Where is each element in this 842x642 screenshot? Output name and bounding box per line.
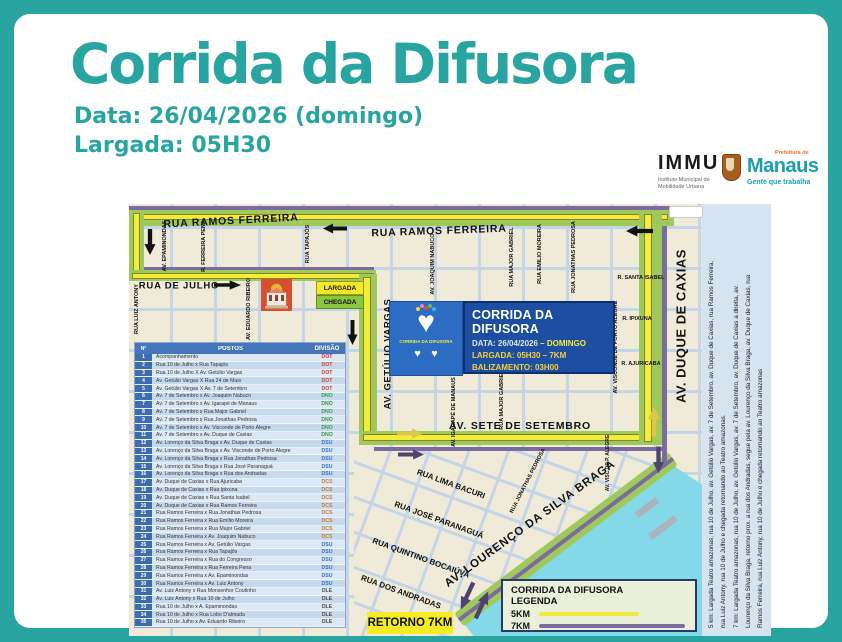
table-row: 27Rua Ramos Ferreira x Rua do CongressoD… [135,557,345,565]
arrow-down-icon [144,229,156,255]
immu-subtitle-line1: Instituto Municipal de [658,177,710,183]
table-row: 31Av. Luiz Antony x Rua Monsenhor Coutin… [135,588,345,596]
route-note-line: 7 km: Largada Teatro amazonas, rua 10 de… [731,212,743,628]
table-row: 23Rua Ramos Ferreira x Rua Major Gabriel… [135,526,345,534]
table-header: N° POSTOS DIVISÃO [135,343,345,354]
route-5km-line-duque [644,214,652,442]
immu-logo: IMMU Instituto Municipal de Mobilidade U… [658,152,718,191]
route-note-line: Ramos Ferreira, rua Luiz Antony, rua 10 … [755,212,767,628]
route-description-panel: 5 km: Largada Teatro amazonas, rua 10 de… [702,204,771,636]
table-row: 34Rua 10 de Julho x Rua Lobo D'almadaDLE [135,611,345,619]
legend-7km-line-icon [539,624,685,628]
table-row: 11Av. 7 de Setembro x Av. Duque de Caxia… [135,432,345,440]
info-date-label: DATA: 26/04/2026 – [472,339,545,348]
table-row: 8Av. 7 de Setembro x Rua Major GabrielDN… [135,409,345,417]
table-row: 35Rua 10 de Julho x Av. Eduardo RibeiroD… [135,619,345,627]
manaus-logo: Prefeitura de Manaus Gente que trabalha [747,150,818,186]
route-7km-line-right [662,206,667,463]
table-row: 13Av. Lorenço da Silva Braga x Av. Visco… [135,448,345,456]
header-divisao: DIVISÃO [309,346,345,352]
street-label: AV. DUQUE DE CAXIAS [674,249,689,403]
table-row: 12Av. Lorenço da Silva Braga x Av. Duque… [135,440,345,448]
event-info-box: CORRIDA DA DIFUSORA DATA: 26/04/2026 – D… [463,301,615,374]
street-label: RUA EMILIO MOREIRA [537,224,543,284]
legend-item-5km: 5KM [511,609,687,619]
start-time: Largada: 05H30 [74,133,271,158]
heart-logo-icon: ♥ [431,348,438,360]
table-row: 22Rua Ramos Ferreira x Rua Emílio Moreir… [135,518,345,526]
table-row: 5Av. Getúlio Vargas X Av. 7 de SetembroD… [135,385,345,393]
map-search-box [669,206,703,218]
route-note-line: Lourenço da Silva Braga, retorno prox. a… [743,212,755,628]
table-row: 19Av. Duque de Caxias x Rua Santa Isabel… [135,494,345,502]
route-description-text: 5 km: Largada Teatro amazonas, rua 10 de… [702,204,771,636]
manaus-crest-icon [722,154,741,181]
retorno-7km-marker: RETORNO 7KM [367,612,453,634]
poster-card: Corrida da Difusora Data: 26/04/2026 (do… [14,14,828,628]
route-note-line: rua Luiz Antony, rua 10 de Julho e chega… [718,212,730,628]
immu-subtitle-line2: Mobilidade Urbana [658,184,704,190]
street-label: R. FERREIRA PENA [201,220,207,272]
table-row: 16Av. Lorenço da Silva Braga x Rua dos A… [135,471,345,479]
info-title: CORRIDA DA DIFUSORA [472,308,606,336]
legend-7km-label: 7KM [511,621,539,631]
street-label: RUA MAJOR GABRIEL [509,227,515,286]
info-date-line: DATA: 26/04/2026 – DOMINGO [472,339,606,348]
table-row: 28Rua Ramos Ferreira x Rua Ferreira Pena… [135,565,345,573]
page-title: Corrida da Difusora [70,32,637,96]
manaus-logo-name: Manaus [747,156,818,177]
table-row: 33Rua 10 de Julho x A. EpaminondasDLE [135,604,345,612]
legend-5km-line-icon [539,612,639,616]
immu-logo-name: IMMU [658,152,718,175]
table-row: 21Rua Ramos Ferreira x Rua Jonathas Pedr… [135,510,345,518]
route-map: RUA RAMOS FERREIRARUA RAMOS FERREIRARUA … [129,204,771,636]
table-row: 30Rua Ramos Ferreira x Av. Luiz AntonyDS… [135,580,345,588]
route-7km-line-duque-south [662,445,667,463]
street-label: AV. SETE DE SETEMBRO [449,420,591,432]
route-5km-line-left [133,213,140,271]
table-row: 7Av. 7 de Setembro x Av. Igarapé de Mana… [135,401,345,409]
table-row: 17Av. Duque de Caxias x Rua AjuricabaDCS [135,479,345,487]
info-largada-line: LARGADA: 05H30 – 7KM [472,351,606,360]
street-label: AV. EDUARDO RIBEIRO [246,278,252,340]
legend-subtitle: LEGENDA [511,596,687,607]
street-label: R. IPIXUNA [622,316,651,322]
header-number: N° [135,343,152,354]
largada-marker: LARGADA [316,281,364,295]
legend-box: CORRIDA DA DIFUSORA LEGENDA 5KM 7KM [501,579,697,632]
table-body: 1AcompanhamentoDOT2Rua 10 de Julho x Rua… [135,354,345,627]
route-7km-line-sete-parallel [374,447,664,451]
table-row: 14Av. Lorenço da Silva Braga x Rua Jonat… [135,455,345,463]
table-row: 3Rua 10 de Julho X Av. Getúlio VargasDOT [135,370,345,378]
street-label: R. AJURICABA [621,361,660,367]
header-postos: POSTOS [152,346,309,352]
table-row: 18Av. Duque de Caxias x Rua IpixunaDCS [135,487,345,495]
table-row: 9Av. 7 de Setembro x Rua Jonathas Pedros… [135,416,345,424]
heart-logo-icon: ♥ [417,308,435,338]
route-5km-line-getulio [363,277,371,441]
teatro-amazonas-icon [261,279,292,311]
table-row: 10Av. 7 de Setembro x Av. Visconde de Po… [135,424,345,432]
street-label: RUA LUIZ ANTONY [134,284,140,334]
mini-logos: ♥ ♥ [411,344,441,362]
table-row: 29Rua Ramos Ferreira x Av. EpaminondasDS… [135,572,345,580]
street-label: RUA DE JULHO [139,281,220,292]
arrow-down-icon [347,320,358,345]
table-row: 1AcompanhamentoDOT [135,354,345,362]
street-label: RUA MAJOR GABRIEL [499,370,505,429]
posts-table: N° POSTOS DIVISÃO 1AcompanhamentoDOT2Rua… [134,342,346,628]
street-label: AV. VISC DE P. ALEGRE [605,435,611,491]
street-label: RUA JONATHAS PEDROSA [571,221,577,293]
route-5km-line-julho [132,273,374,279]
manaus-logo-tagline: Gente que trabalha [747,179,818,186]
street-label: RUA TAPAJÓS [305,225,311,263]
event-date: Data: 26/04/2026 (domingo) [74,104,423,129]
event-logo-box: ♥ CORRIDA DA DIFUSORA ♥ ♥ [389,301,463,376]
immu-logo-subtitle: Instituto Municipal de Mobilidade Urbana [658,177,718,191]
legend-5km-label: 5KM [511,609,539,619]
street-label: AV. EPAMINONDAS [162,221,168,272]
route-note-line: 5 km: Largada Teatro amazonas, rua 10 de… [706,212,718,628]
table-row: 4Av. Getúlio Vargas X Rua 24 de MaioDOT [135,377,345,385]
table-row: 25Rua Ramos Ferreira x Av. Getúlio Varga… [135,541,345,549]
info-date-value: DOMINGO [547,339,586,348]
table-row: 24Rua Ramos Ferreira x Av. Joaquim Nabuc… [135,533,345,541]
heart-logo-icon: ♥ [414,348,421,360]
street-label: AV. JOAQUIM NABUCO [430,233,436,294]
table-row: 20Av. Duque de Caxias x Rua Ramos Ferrei… [135,502,345,510]
table-row: 32Av. Luiz Antony x Rua 10 de JulhoDLE [135,596,345,604]
table-row: 2Rua 10 de Julho x Rua TapajósDOT [135,362,345,370]
legend-item-7km: 7KM [511,621,687,631]
table-row: 6Av. 7 de Setembro x Av. Joaquim NabucoD… [135,393,345,401]
legend-title: CORRIDA DA DIFUSORA [511,585,687,596]
info-balizamento-line: BALIZAMENTO: 03H00 [472,363,606,372]
table-row: 26Rua Ramos Ferreira x Rua TapajósDSU [135,549,345,557]
street-label: AV. IGARAPÉ DE MANAUS [451,377,457,447]
chegada-marker: CHEGADA [316,295,364,309]
table-row: 15Av. Lorenço da Silva Braga x Rua José … [135,463,345,471]
street-label: R. SANTA ISABEL [617,275,664,281]
